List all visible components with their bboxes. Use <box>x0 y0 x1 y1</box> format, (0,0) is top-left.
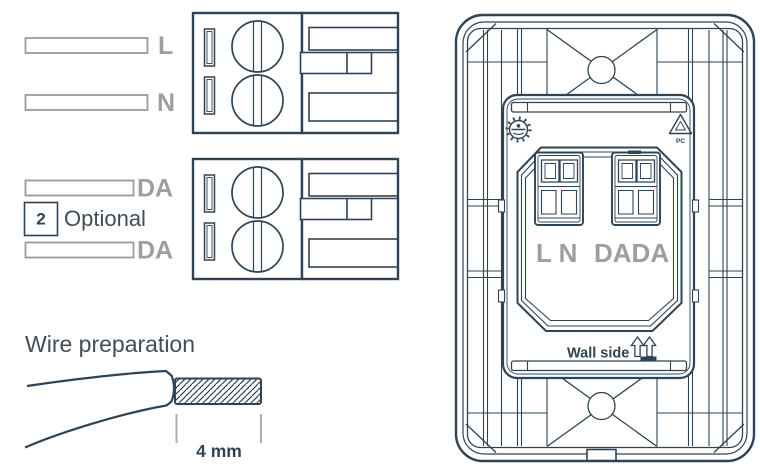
clamp-lever <box>301 53 372 74</box>
bottom-mount-hole <box>588 393 615 420</box>
measure-ticks <box>177 414 262 443</box>
dali-wiring: DA DA 2 Optional <box>25 175 174 265</box>
terminal-label-dali: DADA <box>594 238 669 268</box>
side-tab <box>499 200 505 212</box>
wire-n <box>26 95 148 110</box>
wire-da-1 <box>26 181 134 196</box>
wire-preparation: Wire preparation 4 mm <box>25 331 261 461</box>
wire-label-da-2: DA <box>137 237 173 265</box>
wire-preparation-title: Wire preparation <box>25 331 195 357</box>
side-tab <box>499 290 505 302</box>
screw-terminal-block-dali <box>193 159 398 279</box>
side-tab <box>693 200 699 212</box>
device-rear-view: PC L N DADA <box>456 15 754 461</box>
wire-label-n: N <box>157 89 175 117</box>
top-mount-hole <box>588 57 615 84</box>
module-body <box>503 95 694 378</box>
wire-da-2 <box>26 243 134 258</box>
wiring-installation-diagram: L N DA DA 2 Optional Wire preparation <box>0 0 760 476</box>
diagram-canvas: L N DA DA 2 Optional Wire preparation <box>0 0 760 476</box>
bottom-notch <box>587 450 616 461</box>
terminal-socket <box>535 153 583 226</box>
wall-side-label: Wall side <box>567 346 629 362</box>
screw-terminal-block <box>193 13 398 133</box>
wire-l <box>26 38 148 53</box>
side-tab <box>693 290 699 302</box>
terminal-socket-dali <box>612 153 660 226</box>
terminal-module: PC L N DADA <box>499 95 699 378</box>
callout-number: 2 <box>36 210 45 229</box>
optional-label: Optional <box>64 206 146 231</box>
strip-length-label: 4 mm <box>196 441 242 461</box>
socket-key-mark <box>628 151 641 155</box>
power-wiring: L N <box>26 32 176 117</box>
stripped-conductor <box>175 379 261 405</box>
terminal-front-box <box>193 13 302 133</box>
wire-label-l: L <box>158 32 173 60</box>
wire-label-da-1: DA <box>137 175 173 203</box>
recycle-material-code: PC <box>676 138 685 145</box>
arrow-base <box>641 357 657 362</box>
terminal-label-power: L N <box>536 238 577 268</box>
